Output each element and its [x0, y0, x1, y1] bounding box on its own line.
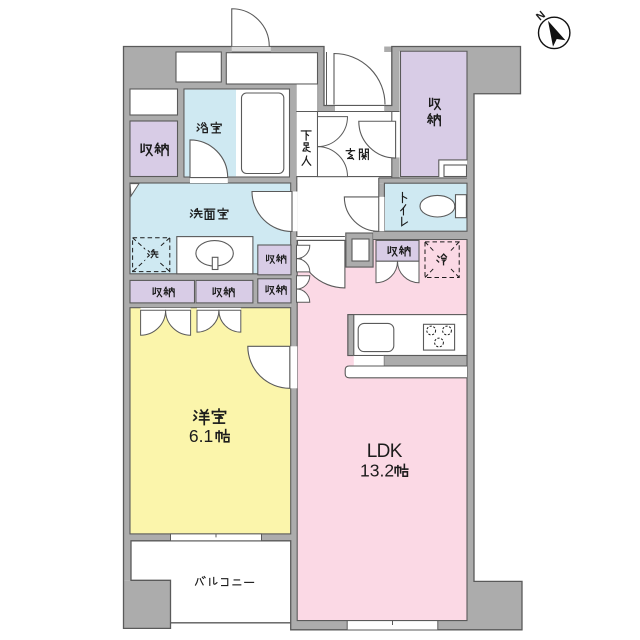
svg-text:LDK: LDK — [367, 441, 403, 462]
svg-text:13.2: 13.2 — [360, 460, 394, 480]
svg-text:6.1: 6.1 — [189, 426, 213, 446]
